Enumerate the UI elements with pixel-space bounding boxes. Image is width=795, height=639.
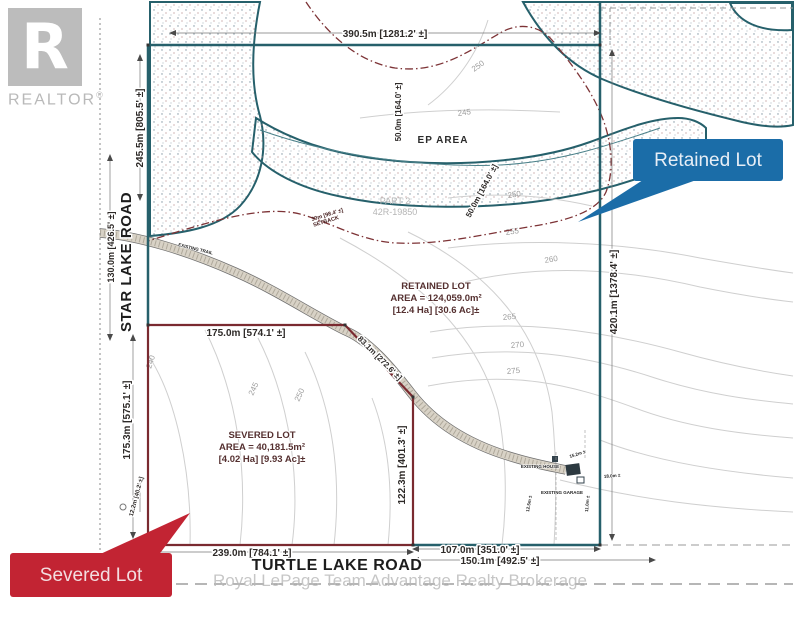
dim-south-retained: 107.0m [351.0' ±] xyxy=(440,545,519,556)
contour-label: 250 xyxy=(507,189,522,200)
setback-offset-a: 50.0m [164.0' ±] xyxy=(394,82,403,141)
dim-west-road: 130.0m [426.5' ±] xyxy=(106,211,116,282)
part-label: PART 2 xyxy=(380,196,411,206)
retained-lot-title: RETAINED LOT xyxy=(401,281,471,292)
survey-map: 240 245 250 250 245 250 255 260 265 270 … xyxy=(0,0,795,639)
building-dim-2: 18.0m ± xyxy=(604,473,621,479)
severed-callout-tail xyxy=(96,513,190,556)
severed-lot-acres: [4.02 Ha] [9.93 Ac]± xyxy=(219,454,306,465)
contour-label: 245 xyxy=(457,107,472,118)
realtor-logo-letter: R xyxy=(21,16,69,78)
contour-label: 250 xyxy=(293,386,307,402)
realtor-logo: R REALTOR® xyxy=(8,8,118,109)
contour-label: 275 xyxy=(506,366,521,376)
dim-west-severed: 175.3m [575.1' ±] xyxy=(122,380,133,459)
contour-label: 260 xyxy=(544,254,559,265)
dim-split-diag: 83.1m [272.6' ±] xyxy=(356,334,404,382)
dim-west-retained: 245.5m [805.5' ±] xyxy=(135,88,146,167)
severed-callout-label: Severed Lot xyxy=(40,565,143,586)
retained-lot-area: AREA = 124,059.0m² xyxy=(390,293,481,304)
severed-lot-callout: Severed Lot xyxy=(10,513,190,597)
dim-top: 390.5m [1281.2' ±] xyxy=(343,29,428,40)
contour-label: 265 xyxy=(502,312,517,322)
dim-split-north: 175.0m [574.1' ±] xyxy=(206,328,285,339)
retained-lot-acres: [12.4 Ha] [30.6 Ac]± xyxy=(393,305,480,316)
contour-label: 245 xyxy=(247,380,261,396)
building-dim-4: 11.0m ± xyxy=(584,495,590,512)
plan-number-label: 42R-19850 xyxy=(373,207,418,217)
lot-area-labels: RETAINED LOT AREA = 124,059.0m² [12.4 Ha… xyxy=(219,281,482,465)
registered-mark: ® xyxy=(96,90,105,100)
realtor-logo-block: R xyxy=(8,8,82,86)
dim-corner-jog: 12.2m [40.2' ±] xyxy=(129,476,145,517)
monument-circle xyxy=(120,504,126,510)
dim-split-east: 122.3m [401.3' ±] xyxy=(397,425,408,504)
ep-area-label: EP AREA xyxy=(418,135,469,146)
building-dim-3: 12.5m ± xyxy=(525,495,533,513)
ep-blob-left xyxy=(150,2,263,236)
contour-label: 270 xyxy=(510,340,525,350)
retained-callout-label: Retained Lot xyxy=(654,150,762,171)
house-label: EXISTING HOUSE xyxy=(521,464,559,469)
garage-label: EXISTING GARAGE xyxy=(541,490,583,495)
severed-lot-area: AREA = 40,181.5m² xyxy=(219,442,305,453)
brokerage-watermark: Royal LePage Team Advantage Realty Broke… xyxy=(213,571,587,590)
building-dim-1: 15.2m ± xyxy=(569,449,587,459)
contour-label: 255 xyxy=(505,226,520,237)
severed-lot-title: SEVERED LOT xyxy=(228,430,295,441)
survey-map-page: R REALTOR® xyxy=(0,0,795,639)
dim-east: 420.1m [1378.4' ±] xyxy=(609,250,620,335)
existing-buildings: EXISTING HOUSE EXISTING GARAGE 15.2m ± 1… xyxy=(521,430,621,540)
contour-label: 250 xyxy=(470,58,487,73)
dim-south-total: 150.1m [492.5' ±] xyxy=(460,556,539,567)
road-name-west: STAR LAKE ROAD xyxy=(118,192,135,332)
realtor-logo-word: REALTOR® xyxy=(8,90,118,109)
